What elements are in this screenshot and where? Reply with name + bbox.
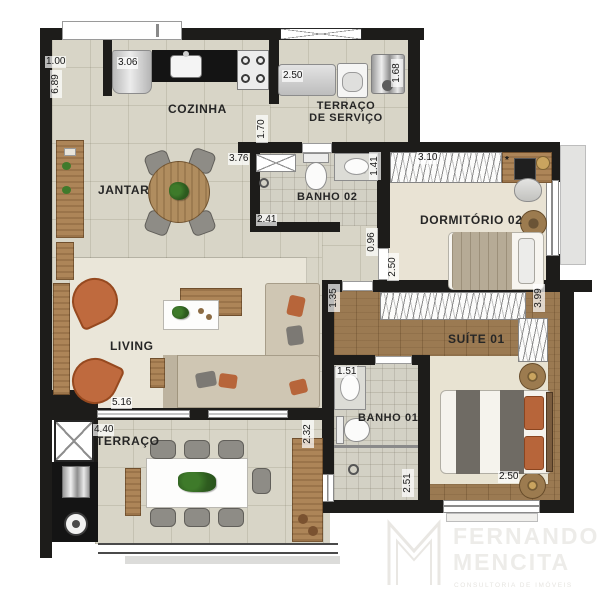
burner-4 bbox=[256, 74, 265, 83]
dim-suite-bed: 2.50 bbox=[498, 471, 519, 483]
terraco-pot-2 bbox=[308, 526, 318, 536]
entry-door-leaf bbox=[62, 21, 182, 40]
banho01-door bbox=[375, 356, 412, 364]
label-suite01: SUÍTE 01 bbox=[448, 332, 505, 346]
banho01-sink bbox=[340, 374, 360, 401]
suite-lamp-1 bbox=[528, 372, 537, 381]
wall-banho02-top-a bbox=[238, 142, 302, 153]
wall-service-right bbox=[408, 40, 420, 146]
dorm02-chair bbox=[514, 178, 542, 202]
label-cozinha: COZINHA bbox=[168, 102, 227, 116]
dim-banho01-counter: 1.51 bbox=[336, 366, 357, 378]
banho02-sink bbox=[344, 158, 369, 175]
dorm02-window bbox=[546, 180, 559, 256]
banho01-shower-glass bbox=[334, 445, 418, 448]
exterior-ledge bbox=[560, 145, 586, 265]
wall-left bbox=[40, 28, 52, 558]
dorm02-desk-lamp bbox=[536, 156, 550, 170]
logo-line2: MENCITA bbox=[453, 550, 570, 574]
laundry-sink-basin bbox=[342, 72, 363, 92]
dorm02-blanket bbox=[452, 232, 512, 290]
suite-bed-runner-1 bbox=[456, 390, 480, 474]
dorm02-monitor bbox=[514, 158, 536, 180]
banho02-shower-box bbox=[256, 154, 296, 172]
watermark-logo: FERNANDO MENCITA consultoria de imóveis bbox=[383, 510, 593, 595]
dim-banho01-shower: 2.51 bbox=[402, 469, 414, 497]
terraco-sideboard bbox=[292, 438, 323, 542]
suite-door bbox=[342, 281, 373, 291]
suite-bed-runner-2 bbox=[500, 390, 524, 474]
note-asterisk: * bbox=[504, 155, 510, 167]
dim-fridge-nook: 3.06 bbox=[117, 57, 138, 69]
label-jantar: JANTAR bbox=[98, 183, 149, 197]
sliding-door-terrace-1 bbox=[97, 410, 190, 418]
label-banho02: BANHO 02 bbox=[297, 191, 357, 203]
jantar-centerpiece bbox=[169, 182, 189, 200]
dim-hall-passage: 0.96 bbox=[366, 228, 378, 256]
entry-door-handle bbox=[156, 24, 159, 37]
logo-m-icon bbox=[383, 515, 445, 590]
wall-top-right bbox=[362, 28, 424, 40]
dim-dorm02-wardrobe: 3.10 bbox=[417, 152, 438, 164]
sofa-side-table bbox=[150, 358, 165, 388]
dim-terraco-depth: 2.32 bbox=[302, 420, 314, 448]
suite-lamp-2 bbox=[528, 481, 537, 490]
buffet-plant-1 bbox=[62, 162, 71, 170]
terraco-chair-6 bbox=[218, 508, 244, 527]
burner-3 bbox=[241, 74, 250, 83]
dim-laundry-counter: 2.50 bbox=[282, 70, 303, 82]
banho01-toilet-tank bbox=[336, 416, 344, 444]
kitchen-faucet bbox=[183, 51, 189, 57]
sofa-pillow-orange-1 bbox=[218, 373, 238, 389]
suite-pillow-2 bbox=[524, 436, 544, 470]
coffee-table-plant bbox=[172, 306, 189, 319]
elevator-shaft bbox=[54, 420, 94, 462]
dim-suite-entry: 1.35 bbox=[328, 284, 340, 312]
dim-banho02-counter: 1.41 bbox=[369, 152, 381, 180]
label-terraco-servico-line2: DE SERVIÇO bbox=[309, 112, 383, 124]
buffet-plant-2 bbox=[62, 186, 71, 194]
terraco-chair-4 bbox=[150, 508, 176, 527]
banho02-door bbox=[302, 143, 332, 153]
burner-1 bbox=[241, 56, 250, 65]
dorm02-wardrobe bbox=[390, 152, 502, 183]
banho02-shower-head bbox=[259, 178, 269, 188]
service-window bbox=[280, 28, 362, 40]
dim-dorm02-depth: 2.50 bbox=[387, 253, 399, 281]
terraco-chair-7 bbox=[252, 468, 271, 494]
dim-jantar-wall: 3.76 bbox=[228, 153, 249, 165]
label-terraco-servico-line1: TERRAÇO bbox=[317, 100, 376, 112]
dorm02-pillow bbox=[518, 238, 535, 284]
suite-wardrobe-side bbox=[518, 318, 548, 362]
kitchen-sink bbox=[170, 55, 202, 78]
label-dormitorio02: DORMITÓRIO 02 bbox=[420, 213, 522, 227]
label-terraco-servico: TERRAÇO DE SERVIÇO bbox=[300, 100, 392, 124]
dim-water-heater: 1.68 bbox=[391, 59, 403, 87]
terraco-pot-1 bbox=[298, 514, 308, 524]
suite-headboard bbox=[546, 392, 553, 472]
buffet-tray bbox=[64, 148, 76, 156]
suite-pillow-1 bbox=[524, 396, 544, 430]
wall-banho01-top-a bbox=[334, 355, 375, 365]
sofa-pillow-gray-2 bbox=[286, 325, 304, 346]
wall-suite-left bbox=[322, 290, 334, 502]
dim-kitchen-passage: 1.70 bbox=[256, 115, 268, 143]
dim-entry-offset: 1.00 bbox=[45, 56, 66, 68]
label-living: LIVING bbox=[110, 339, 154, 353]
sofa-armrest bbox=[163, 355, 178, 408]
grill-sink-drain bbox=[72, 520, 80, 528]
terraco-chair-3 bbox=[218, 440, 244, 459]
dim-suite-wardrobe: 3.99 bbox=[533, 284, 545, 312]
logo-line1: FERNANDO bbox=[453, 524, 599, 548]
terraco-bench bbox=[125, 468, 141, 516]
banho01-window bbox=[322, 474, 334, 502]
wall-banho01-right bbox=[418, 355, 430, 500]
dim-living-width: 5.16 bbox=[111, 397, 132, 409]
dim-banho02-width: 2.41 bbox=[256, 214, 277, 226]
floor-plan: 1.00 6.89 3.06 2.50 1.68 1.70 3.76 1.41 … bbox=[0, 0, 605, 600]
terraco-slab-shadow bbox=[125, 556, 340, 564]
wall-suite-right bbox=[560, 280, 574, 513]
coffee-decor-1 bbox=[198, 308, 204, 314]
terraco-railing bbox=[98, 543, 338, 554]
logo-tagline: consultoria de imóveis bbox=[454, 582, 573, 589]
suite-wardrobe-top bbox=[380, 292, 526, 320]
coffee-decor-2 bbox=[206, 314, 212, 320]
terraco-centerpiece bbox=[178, 472, 216, 492]
terraco-chair-5 bbox=[184, 508, 210, 527]
banho02-toilet bbox=[305, 162, 327, 190]
label-banho01: BANHO 01 bbox=[358, 412, 418, 424]
banho01-shower-head bbox=[348, 464, 359, 475]
burner-2 bbox=[256, 56, 265, 65]
jantar-console bbox=[56, 242, 74, 280]
sliding-door-terrace-2 bbox=[208, 410, 288, 418]
dim-left-wall: 6.89 bbox=[50, 70, 62, 98]
living-sideboard bbox=[53, 283, 70, 395]
wall-fridge-stub bbox=[103, 40, 112, 96]
label-terraco: TERRAÇO bbox=[96, 434, 160, 448]
grill bbox=[62, 466, 90, 498]
terraco-chair-2 bbox=[184, 440, 210, 459]
